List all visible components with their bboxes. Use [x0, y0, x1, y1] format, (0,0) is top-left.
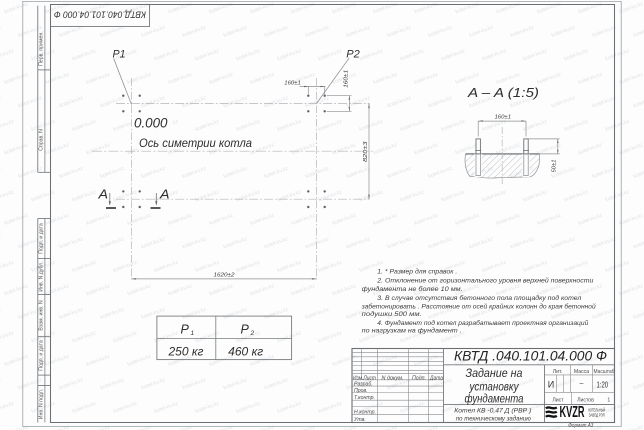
svg-text:1620±2: 1620±2	[214, 273, 236, 279]
svg-text:Т.контр.: Т.контр.	[354, 395, 375, 401]
svg-text:160±1: 160±1	[284, 81, 301, 87]
svg-text:N докум.: N докум.	[382, 375, 404, 381]
svg-text:250 кг: 250 кг	[167, 345, 203, 359]
svg-text:0.000: 0.000	[134, 116, 168, 131]
svg-text:Подп. и дата: Подп. и дата	[39, 340, 45, 371]
svg-text:2. Отклонение от горизонтал: 2. Отклонение от горизонтального уровня …	[376, 276, 593, 284]
svg-text:Лист: Лист	[552, 398, 564, 404]
svg-text:P: P	[241, 323, 250, 337]
svg-text:Разраб.: Разраб.	[354, 382, 373, 388]
svg-text:Пров.: Пров.	[354, 388, 368, 394]
svg-text:Перв. примен.: Перв. примен.	[39, 31, 45, 66]
svg-text:A – A (1:5): A – A (1:5)	[467, 85, 539, 100]
svg-text:A: A	[97, 186, 108, 201]
svg-text:Листов: Листов	[577, 398, 594, 404]
svg-text:установку: установку	[469, 381, 520, 393]
svg-text:460 кг: 460 кг	[228, 345, 263, 359]
svg-text:160±1: 160±1	[344, 70, 350, 88]
svg-text:Масса: Масса	[574, 369, 589, 375]
svg-text:1:20: 1:20	[597, 379, 609, 389]
svg-text:по техническому заданию: по техническому заданию	[456, 415, 531, 422]
svg-text:фундамента: фундамента	[465, 394, 524, 406]
svg-text:Утв.: Утв.	[354, 417, 366, 423]
svg-text:–: –	[580, 381, 584, 388]
svg-text:1: 1	[607, 398, 610, 404]
svg-text:2: 2	[250, 330, 255, 337]
svg-text:Инв. N дубл.: Инв. N дубл.	[39, 261, 45, 291]
svg-text:ЗАВОД РЭП: ЗАВОД РЭП	[589, 412, 605, 417]
svg-text:Котел КВ -0,47 Д (РВР ): Котел КВ -0,47 Д (РВР )	[454, 407, 531, 414]
svg-text:фундамента не более 10 мм.: фундамента не более 10 мм.	[362, 285, 463, 293]
svg-text:P: P	[181, 323, 190, 337]
svg-text:Задание на: Задание на	[466, 368, 523, 380]
svg-text:Взам. инв. N: Взам. инв. N	[39, 300, 45, 331]
svg-text:4. Фундамент под котел раз: 4. Фундамент под котел разрабатывает про…	[377, 319, 588, 327]
svg-text:Подп. и дата: Подп. и дата	[39, 223, 45, 254]
svg-text:P1: P1	[113, 48, 126, 60]
svg-text:КВТД .040.101.04.000 Ф: КВТД .040.101.04.000 Ф	[454, 348, 607, 363]
svg-text:забетонировать . Расстояние: забетонировать . Расстояние от осей край…	[361, 303, 596, 311]
svg-text:КВТД.040.101.04.000 Ф: КВТД.040.101.04.000 Ф	[54, 10, 146, 20]
svg-text:Дата: Дата	[429, 375, 443, 381]
svg-text:по нагрузкам на фундамент .: по нагрузкам на фундамент .	[362, 327, 462, 335]
svg-text:160±1: 160±1	[495, 114, 512, 120]
svg-text:820±3: 820±3	[363, 141, 369, 162]
svg-text:Подп.: Подп.	[412, 375, 426, 381]
svg-text:Н.контр.: Н.контр.	[354, 410, 376, 416]
svg-text:1: 1	[191, 330, 195, 337]
svg-text:1. * Размер для справок .: 1. * Размер для справок .	[377, 268, 457, 276]
svg-text:Изм.Лист: Изм.Лист	[353, 375, 377, 381]
svg-text:3. В случае отсутствия бет: 3. В случае отсутствия бетонного пола пл…	[377, 294, 581, 302]
svg-text:Лит.: Лит.	[553, 369, 563, 375]
svg-text:P2: P2	[346, 49, 360, 61]
svg-text:Формат А3: Формат А3	[568, 423, 594, 429]
svg-text:Масштаб: Масштаб	[594, 369, 615, 375]
svg-text:A: A	[159, 186, 170, 201]
svg-text:Справ. N: Справ. N	[39, 129, 45, 151]
svg-text:KVZR: KVZR	[560, 404, 585, 421]
svg-text:подушки 500 мм.: подушки 500 мм.	[362, 310, 422, 318]
svg-text:И: И	[548, 379, 554, 389]
svg-text:Ось симетрии котла: Ось симетрии котла	[139, 136, 252, 150]
svg-text:Инв. N подл.: Инв. N подл.	[39, 389, 45, 420]
svg-text:50±1: 50±1	[551, 160, 557, 173]
